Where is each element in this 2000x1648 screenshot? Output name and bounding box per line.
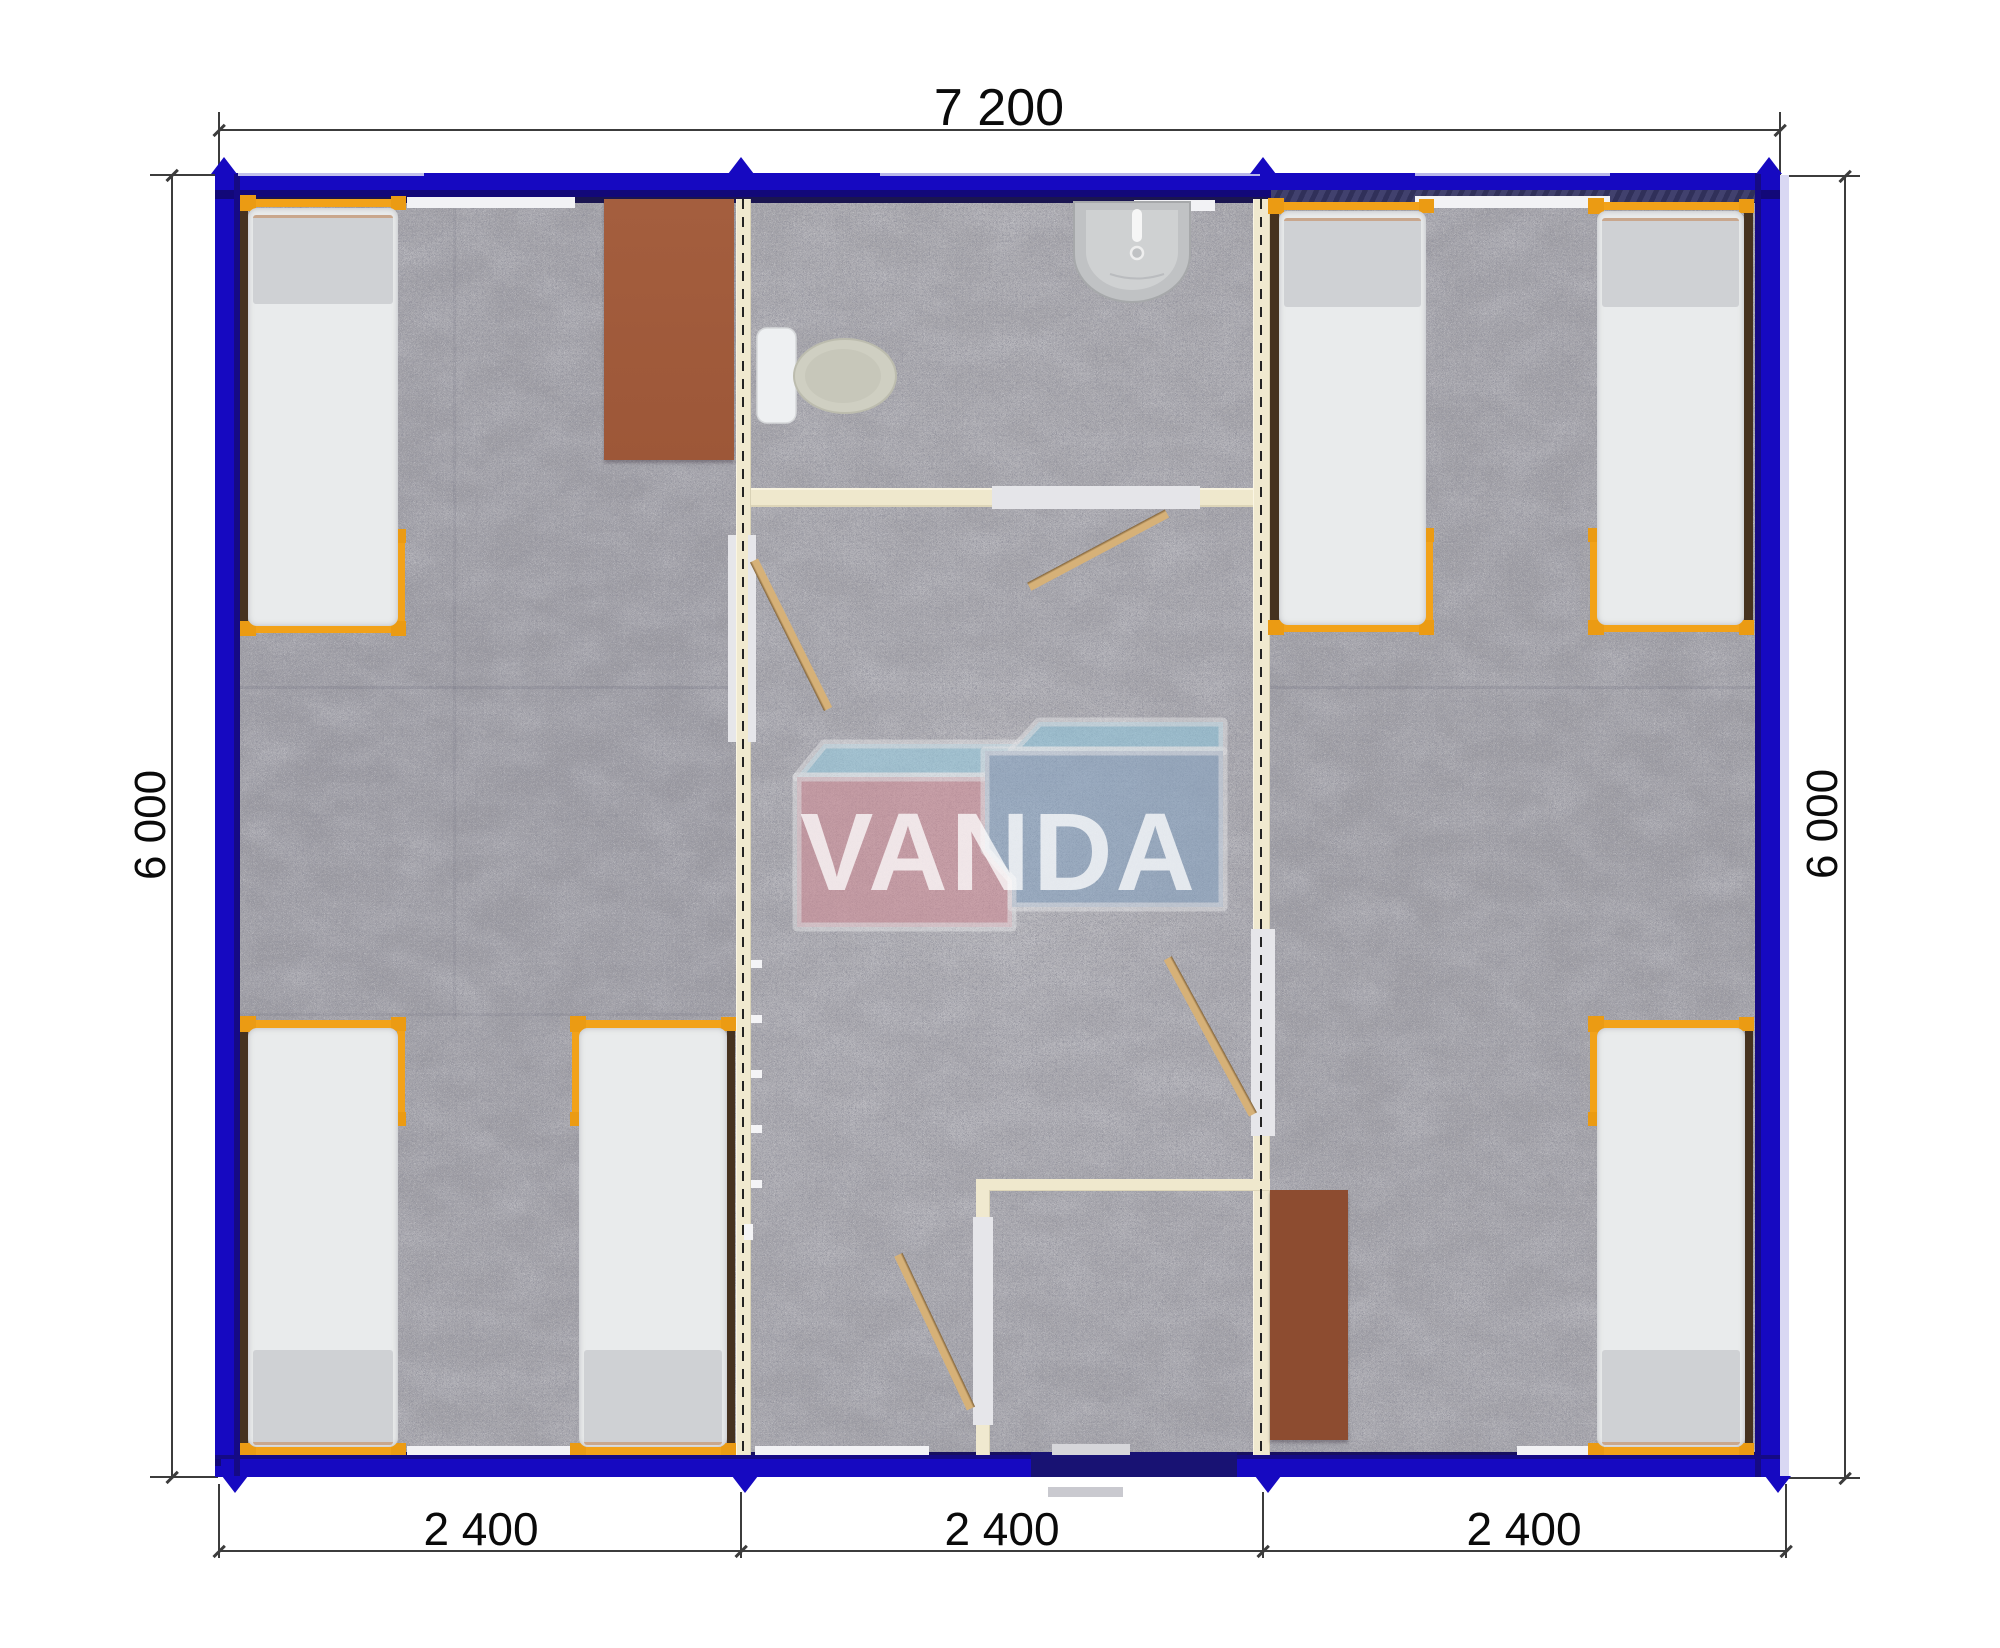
svg-text:VANDA: VANDA — [800, 791, 1198, 914]
